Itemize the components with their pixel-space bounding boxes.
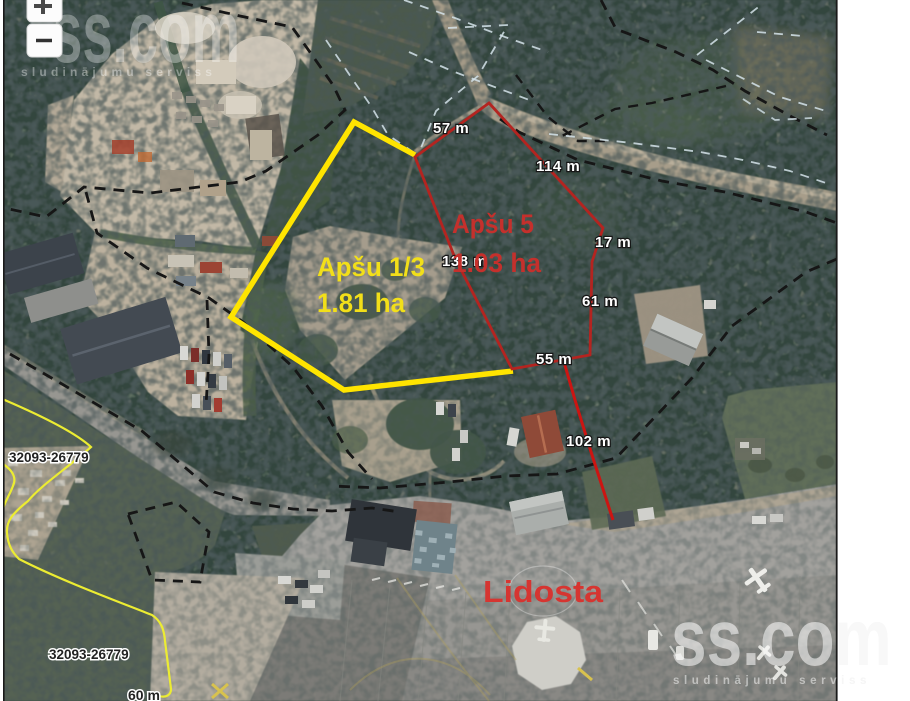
svg-text:114 m: 114 m <box>536 158 580 175</box>
svg-text:Apšu 5: Apšu 5 <box>452 209 534 239</box>
svg-text:32093-26779: 32093-26779 <box>49 647 129 662</box>
svg-text:60 m: 60 m <box>128 687 160 701</box>
svg-text:1.03 ha: 1.03 ha <box>452 248 542 278</box>
svg-text:ss.com: ss.com <box>671 593 892 682</box>
svg-text:Apšu 1/3: Apšu 1/3 <box>317 252 425 282</box>
svg-text:17 m: 17 m <box>595 234 631 251</box>
svg-text:57 m: 57 m <box>433 120 469 137</box>
svg-text:sludinājumu serviss: sludinājumu serviss <box>21 65 216 79</box>
svg-text:61 m: 61 m <box>582 293 618 310</box>
svg-text:sludinājumu serviss: sludinājumu serviss <box>673 675 871 687</box>
svg-text:Lidosta: Lidosta <box>483 574 604 609</box>
svg-text:32093-26779: 32093-26779 <box>9 450 89 465</box>
svg-text:102 m: 102 m <box>566 433 611 450</box>
svg-text:55 m: 55 m <box>536 351 572 368</box>
svg-text:1.81 ha: 1.81 ha <box>317 288 406 318</box>
